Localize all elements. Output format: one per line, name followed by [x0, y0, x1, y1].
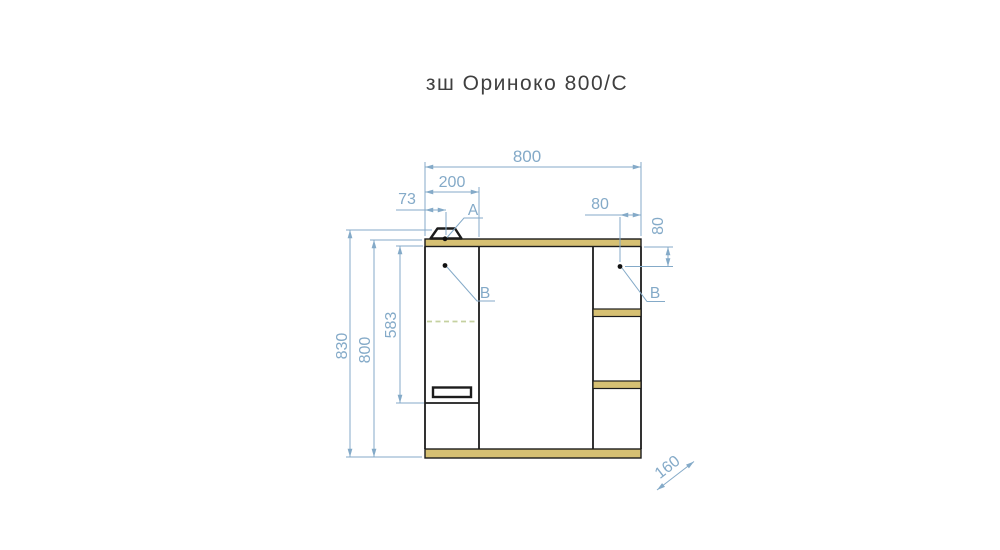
dim-fitting-inset-vertical: 80	[650, 217, 668, 267]
detail-b-right-dot	[618, 264, 623, 269]
dim-lamp-offset: 73	[396, 191, 446, 210]
dim-overall-height: 830	[334, 230, 351, 457]
dim-depth: 160	[652, 453, 694, 490]
dim-door-width: 200	[425, 174, 479, 192]
dim-text-lamp-offset: 73	[398, 191, 416, 208]
dim-overall-width: 800	[425, 147, 641, 167]
dim-text-fitting-inset-vertical: 80	[650, 217, 667, 235]
detail-a-callout: A	[447, 202, 483, 238]
bottom-shelf-strip	[425, 449, 641, 458]
detail-a-label: A	[468, 202, 479, 219]
side-shelf-lower	[593, 381, 641, 389]
dim-body-height: 800	[357, 240, 374, 457]
dim-text-body-height: 800	[357, 337, 374, 364]
dim-text-overall-height: 830	[334, 333, 351, 360]
cabinet-technical-drawing: зш Ориноко 800/С 800	[0, 0, 1000, 550]
dim-door-height: 583	[383, 246, 400, 403]
detail-b-left-dot	[443, 263, 448, 268]
drawing-page: зш Ориноко 800/С 800	[0, 0, 1000, 550]
dim-text-door-height: 583	[383, 312, 400, 339]
drawing-title: зш Ориноко 800/С	[426, 72, 628, 95]
dim-fitting-inset-horizontal: 80	[585, 196, 641, 215]
dim-text-depth: 160	[652, 453, 684, 483]
detail-b-right-callout: B	[622, 268, 665, 302]
detail-b-right-label: B	[650, 285, 660, 302]
dim-text-door-width: 200	[439, 174, 466, 191]
detail-b-left-label: B	[480, 285, 490, 302]
top-cornice-strip	[425, 239, 641, 247]
detail-b-left-callout: B	[447, 267, 495, 302]
side-shelf-upper	[593, 309, 641, 317]
dim-text-fitting-inset-horizontal: 80	[591, 196, 609, 213]
cabinet-front-view	[425, 229, 641, 459]
door-handle	[433, 388, 471, 398]
dim-text-overall-width: 800	[513, 147, 541, 166]
